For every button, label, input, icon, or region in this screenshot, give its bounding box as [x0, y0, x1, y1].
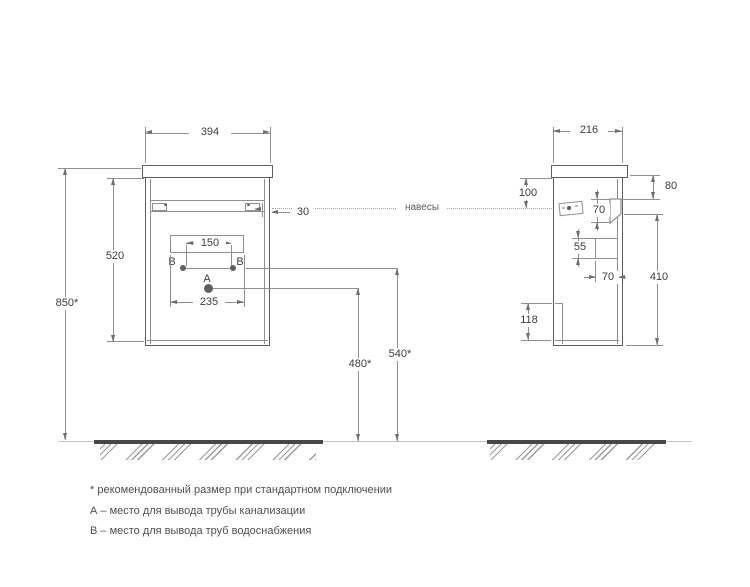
- front-notch-line: [555, 303, 563, 304]
- arrow-right-icon: [237, 300, 244, 304]
- arrow-down-icon: [526, 333, 530, 340]
- ext-line: [244, 255, 245, 307]
- arrow-down-icon: [395, 434, 399, 441]
- screw-dot: [567, 206, 571, 210]
- ext-line: [626, 345, 663, 346]
- arrow-down-icon: [595, 192, 599, 199]
- supply-level-line: [183, 268, 397, 269]
- arrow-up-icon: [576, 258, 580, 265]
- ext-line: [572, 238, 595, 239]
- dim-supply-height: 540*: [384, 348, 416, 361]
- arrow-up-icon: [395, 268, 399, 275]
- arrow-left-icon: [618, 275, 625, 279]
- note-recommended: * рекомендованный размер при стандартном…: [90, 483, 392, 497]
- ext-line: [58, 168, 141, 169]
- arrow-up-icon: [651, 175, 655, 182]
- screw-dot: [164, 204, 167, 207]
- dim-holes-span: 150: [194, 237, 226, 250]
- arrow-down-icon: [111, 335, 115, 342]
- arrow-left-icon: [271, 210, 278, 214]
- floor-hatch-right: [490, 444, 662, 460]
- arrow-right-icon: [589, 275, 596, 279]
- hole-a: [204, 284, 213, 293]
- dim-back-height: 410: [643, 271, 675, 284]
- floor-hatch-left: [100, 444, 316, 460]
- hanger-mark: [575, 205, 578, 207]
- arrow-left-icon: [254, 207, 261, 211]
- bottom-panel-line: [555, 340, 619, 341]
- dim-depth: 216: [570, 124, 608, 137]
- dim-height-front: 520: [99, 250, 131, 263]
- technical-drawing: 394 30 навесы 150 B B A 235 520: [0, 0, 750, 587]
- ext-line: [521, 340, 551, 341]
- wall-bracket-plate: [608, 197, 624, 225]
- dim-rail-offset: 30: [292, 206, 314, 219]
- ext-line: [630, 175, 660, 176]
- floor-segment-left: [94, 440, 323, 444]
- arrow-down-icon: [651, 192, 655, 199]
- arrow-up-icon: [526, 303, 530, 310]
- drain-level-line: [208, 288, 358, 289]
- arrow-left-icon: [170, 300, 177, 304]
- dim-width-front: 394: [189, 126, 231, 139]
- ext-line: [231, 245, 232, 266]
- dim-install-height: 850*: [48, 297, 86, 310]
- arrow-left-icon: [553, 129, 560, 133]
- hanger-mark: [562, 207, 565, 209]
- dim-slot-height: 55: [569, 241, 591, 254]
- arrow-down-icon: [63, 433, 67, 440]
- arrow-down-icon: [655, 338, 659, 345]
- hole-b-left: [180, 265, 186, 271]
- arrow-down-icon: [524, 201, 528, 208]
- dim-holes-outer: 235: [193, 296, 225, 309]
- floor-segment-right: [487, 440, 666, 444]
- arrow-up-icon: [595, 222, 599, 229]
- arrow-down-icon: [576, 231, 580, 238]
- arrow-up-icon: [111, 178, 115, 185]
- note-hole-a: А – место для вывода трубы канализации: [90, 504, 305, 518]
- ext-line: [186, 245, 187, 266]
- slot-box: [595, 238, 618, 259]
- bottom-panel-line: [147, 340, 268, 341]
- hole-b-left-label: B: [166, 256, 178, 269]
- arrow-up-icon: [524, 178, 528, 185]
- ext-line: [595, 261, 596, 282]
- arrow-left-icon: [186, 241, 193, 245]
- dim-bottom-panel: 118: [513, 314, 545, 327]
- arrow-up-icon: [655, 214, 659, 221]
- arrow-left-icon: [145, 130, 152, 134]
- dim-slot-width: 70: [597, 271, 619, 284]
- arrow-right-icon: [615, 129, 622, 133]
- arrow-up-icon: [356, 288, 360, 295]
- ext-line: [270, 127, 271, 163]
- dim-back-top: 80: [658, 180, 684, 193]
- arrow-down-icon: [356, 434, 360, 441]
- hangers-label: навесы: [397, 201, 447, 214]
- dim-drain-height: 480*: [344, 358, 376, 371]
- arrow-right-icon: [263, 130, 270, 134]
- note-hole-b: В – место для вывода труб водоснабжения: [90, 524, 311, 538]
- arrow-up-icon: [63, 168, 67, 175]
- ext-line: [262, 203, 263, 217]
- ext-line: [622, 127, 623, 163]
- ext-line: [591, 199, 660, 200]
- hole-b-right: [230, 265, 236, 271]
- screw-dot: [247, 204, 250, 207]
- front-notch-line: [562, 303, 563, 344]
- dim-bracket-height: 70: [588, 204, 610, 217]
- dim-hanger-top: 100: [511, 187, 545, 200]
